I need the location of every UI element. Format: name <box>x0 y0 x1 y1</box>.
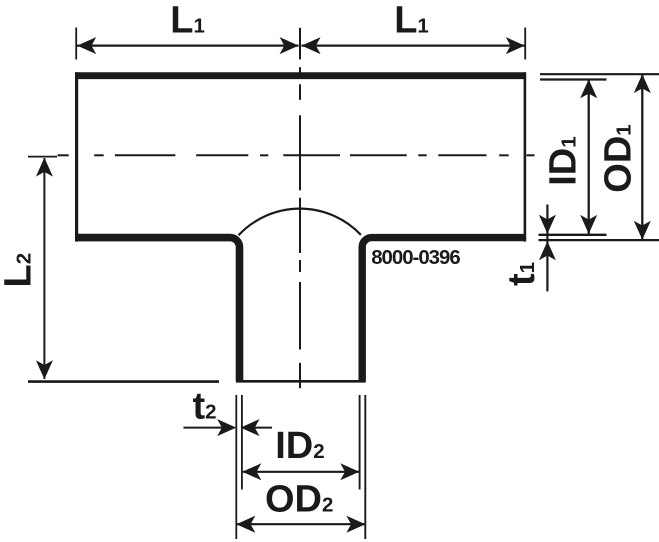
svg-text:ID1: ID1 <box>543 136 585 185</box>
svg-text:L2: L2 <box>0 253 40 288</box>
svg-text:OD1: OD1 <box>598 124 640 192</box>
svg-text:OD2: OD2 <box>265 479 333 521</box>
svg-text:t1: t1 <box>501 262 543 286</box>
svg-text:8000-0396: 8000-0396 <box>371 247 460 269</box>
svg-text:L1: L1 <box>394 0 429 41</box>
svg-text:L1: L1 <box>170 0 205 41</box>
svg-text:t2: t2 <box>193 385 217 427</box>
svg-text:ID2: ID2 <box>275 425 324 467</box>
